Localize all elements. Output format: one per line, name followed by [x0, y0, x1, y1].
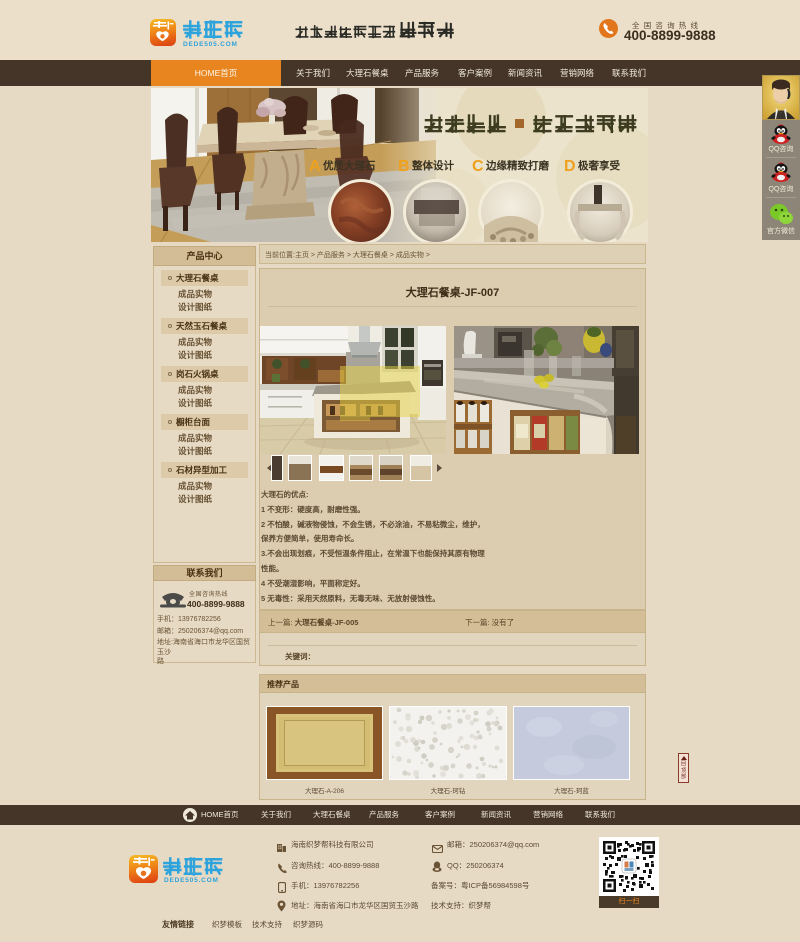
svg-text:优质大理石: 优质大理石: [323, 159, 376, 172]
svg-text:整体设计: 整体设计: [411, 159, 454, 172]
svg-text:B: B: [398, 158, 410, 175]
svg-text:A: A: [309, 158, 321, 175]
svg-text:极奢享受: 极奢享受: [578, 159, 620, 172]
svg-text:C: C: [472, 158, 484, 175]
svg-text:边缘精致打磨: 边缘精致打磨: [485, 159, 549, 172]
svg-text:D: D: [564, 158, 576, 175]
